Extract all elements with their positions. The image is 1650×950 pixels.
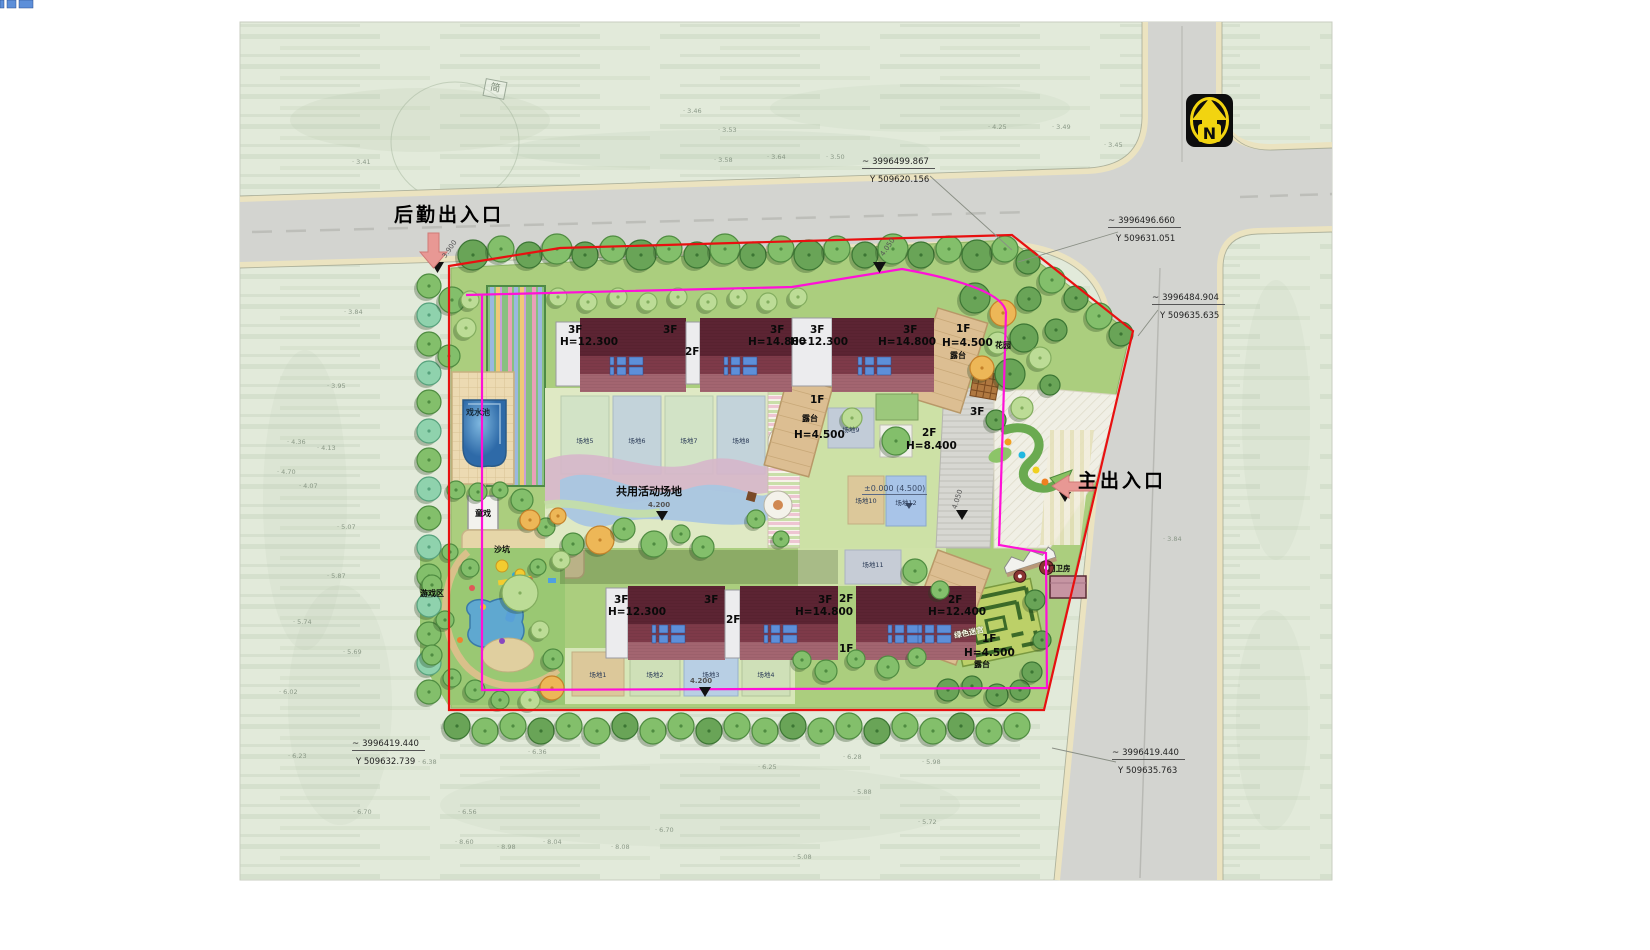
building-height-label: H=4.500 (942, 338, 993, 349)
survey-point-y: Y 509635.635 (1160, 312, 1219, 321)
building-floor-label: 3F (818, 595, 832, 606)
building-height-label: H=4.500 (794, 430, 845, 441)
play-zone-label: 游戏区 (420, 590, 444, 598)
survey-point-y: Y 509620.156 (870, 176, 929, 185)
building-floor-label: 3F (614, 595, 628, 606)
building-floor-label: 1F (956, 324, 970, 335)
survey-point: ~3996496.660 (1108, 217, 1181, 228)
spot-elevation: · 6.70 (655, 826, 674, 834)
class-pad-label: 场地2 (646, 669, 663, 679)
level-squiggle-icon: ~ (862, 157, 869, 167)
spot-elevation: · 3.41 (352, 158, 371, 166)
north-arrow-icon: N (1186, 94, 1233, 147)
spot-elevation: · 8.98 (497, 843, 516, 851)
spot-elevation: · 4.25 (988, 123, 1007, 131)
spot-elevation: · 8.08 (611, 843, 630, 851)
class-pad-label: 场地7 (680, 435, 697, 445)
spot-elevation: · 6.56 (458, 808, 477, 816)
site-plan-sheet: N 后勤出入口 主出入口 ~3996499.867 Y 509620.156 ~… (0, 0, 1650, 950)
building-floor-label: 3F (970, 407, 984, 418)
spot-elevation: · 6.38 (418, 758, 437, 766)
spot-elevation: · 6.36 (528, 748, 547, 756)
building-floor-label: 1F (839, 644, 853, 655)
spot-elevation: · 3.46 (683, 107, 702, 115)
spot-elevation: · 6.23 (288, 752, 307, 760)
garden-label: 花园 (995, 342, 1011, 350)
terrace-label: 露台 (974, 661, 990, 669)
terrace-label: 露台 (802, 415, 818, 423)
main-entrance-label: 主出入口 (1078, 472, 1166, 491)
spot-elevation: · 3.45 (1104, 141, 1123, 149)
spot-elevation: · 5.08 (793, 853, 812, 861)
spot-elevation: · 6.25 (758, 763, 777, 771)
spot-elevation: · 5.74 (293, 618, 312, 626)
internal-road (936, 388, 998, 548)
mid-roof-deck (876, 394, 918, 420)
skylights (0, 0, 33, 8)
building-height-label: H=12.300 (560, 337, 618, 348)
building-height-label: H=8.400 (906, 441, 957, 452)
spot-elevation: · 8.60 (455, 838, 474, 846)
building-floor-label: 1F (810, 395, 824, 406)
building-floor-label: 2F (726, 615, 740, 626)
survey-point-y: Y 509631.051 (1116, 235, 1175, 244)
building-height-label: H=12.300 (790, 337, 848, 348)
building-height-label: H=12.300 (608, 607, 666, 618)
class-pad-label: 场地6 (628, 435, 645, 445)
terrace-label: 露台 (950, 352, 966, 360)
building-floor-label: 3F (568, 325, 582, 336)
north-building-row (556, 318, 934, 392)
survey-point-y: Y 509632.739 (356, 758, 415, 767)
shared-field-level: 4.200 (648, 502, 670, 509)
building-floor-label: 3F (903, 325, 917, 336)
spot-elevation: · 3.64 (767, 153, 786, 161)
building-floor-label: 2F (685, 347, 699, 358)
spot-elevation: · 4.36 (287, 438, 306, 446)
class-pad-label: 场地1 (589, 669, 606, 679)
service-entrance-label: 后勤出入口 (394, 206, 504, 225)
spot-elevation: · 6.02 (279, 688, 298, 696)
class-pad-label: 场地10 (855, 495, 876, 505)
spot-elevation: · 3.95 (327, 382, 346, 390)
building-floor-label: 3F (663, 325, 677, 336)
building-height-label: H=14.800 (795, 607, 853, 618)
class-pad-label: 场地11 (862, 559, 883, 569)
spot-elevation: · 5.98 (922, 758, 941, 766)
roof (832, 318, 934, 392)
class-pad-label: 场地9 (842, 424, 859, 434)
north-letter: N (1203, 124, 1216, 143)
guard-house (1050, 576, 1086, 598)
spot-elevation: · 5.88 (853, 788, 872, 796)
spot-elevation: · 4.07 (299, 482, 318, 490)
building-height-label: H=12.400 (928, 607, 986, 618)
spot-elevation: · 5.69 (343, 648, 362, 656)
class-pad-label: 场地3 (702, 669, 719, 679)
building-floor-label: 3F (704, 595, 718, 606)
spot-elevation: · 5.72 (918, 818, 937, 826)
spot-elevation: · 3.49 (1052, 123, 1071, 131)
spot-elevation: · 4.70 (277, 468, 296, 476)
spot-elevation: · 3.50 (826, 153, 845, 161)
guard-house-label: 门卫房 (1048, 565, 1071, 573)
survey-point: ~3996419.440 (1112, 749, 1185, 760)
spot-elevation: · 3.84 (344, 308, 363, 316)
class-pad-label: 场地4 (757, 669, 774, 679)
spot-elevation: · 6.28 (843, 753, 862, 761)
spot-elevation: · 3.53 (718, 126, 737, 134)
building-floor-label: 3F (770, 325, 784, 336)
spot-elevation: · 5.07 (337, 523, 356, 531)
spot-elevation: · 8.04 (543, 838, 562, 846)
spot-elevation: · 4.13 (317, 444, 336, 452)
spot-elevation: · 5.87 (327, 572, 346, 580)
sand-pit-label: 沙坑 (494, 546, 510, 554)
building-height-label: H=14.800 (878, 337, 936, 348)
survey-point: ~3996419.440 (352, 740, 425, 751)
class-pad-label: 场地12 (895, 497, 916, 507)
sheet-tag: 简 (482, 78, 507, 100)
building-floor-label: 1F (982, 634, 996, 645)
kids-play-label: 童戏 (475, 510, 491, 518)
building-height-label: H=4.500 (964, 648, 1015, 659)
building-floor-label: 2F (922, 428, 936, 439)
spot-elevation: · 3.84 (1163, 535, 1182, 543)
class-pad-label: 场地5 (576, 435, 593, 445)
building-floor-label: 3F (810, 325, 824, 336)
shared-field-label: 共用活动场地 (616, 486, 682, 497)
survey-point: ~3996484.904 (1152, 294, 1225, 305)
building-floor-label: 2F (948, 595, 962, 606)
shared-activity-field (545, 388, 770, 548)
pool-label: 戏水池 (466, 409, 490, 417)
survey-point-y: Y 509635.763 (1118, 767, 1177, 776)
site-plan-drawing: N (0, 0, 1650, 950)
spot-elevation: · 3.58 (714, 156, 733, 164)
zero-level-label: ±0.000 (4.500) (862, 485, 927, 495)
building-floor-label: 2F (839, 594, 853, 605)
survey-point: ~3996499.867 (862, 158, 935, 169)
south-court-level: 4.200 (690, 678, 712, 685)
spot-elevation: · 6.70 (353, 808, 372, 816)
class-pad-label: 场地8 (732, 435, 749, 445)
